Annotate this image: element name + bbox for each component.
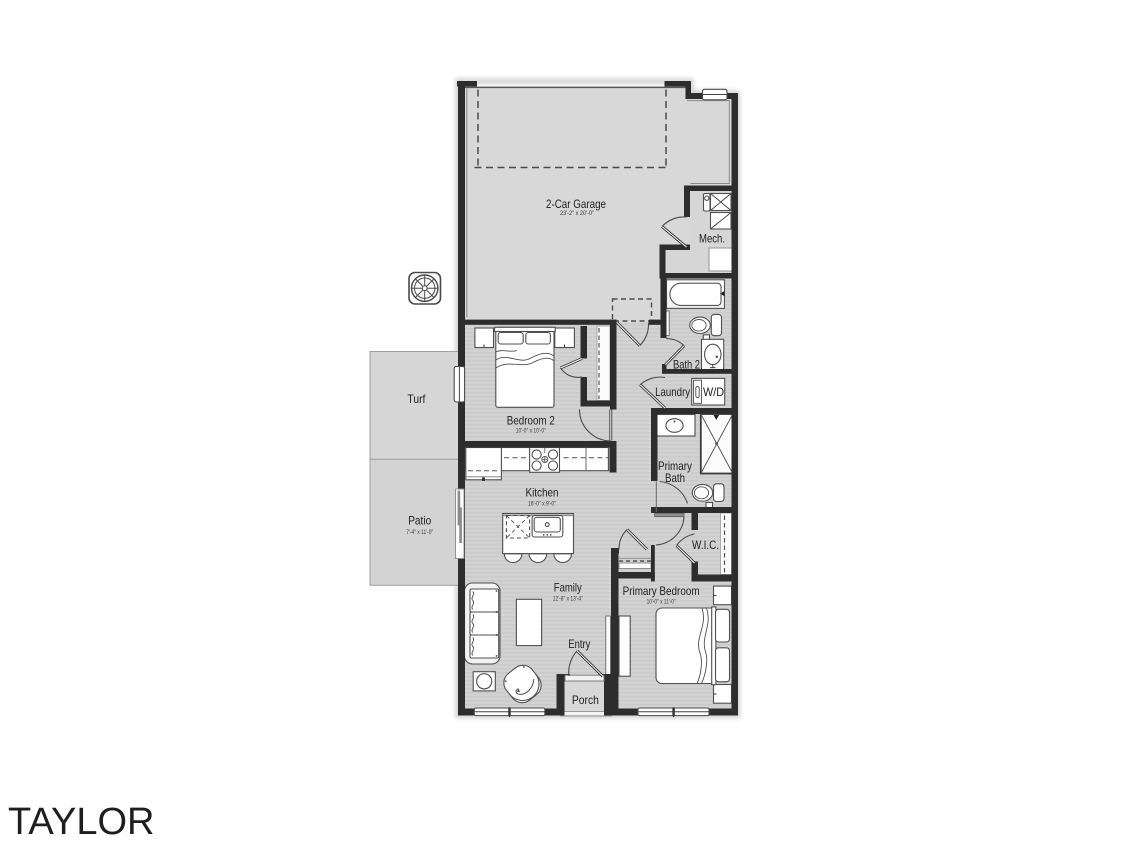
svg-text:Kitchen: Kitchen: [526, 486, 559, 500]
svg-text:23'-2" x 20'-0": 23'-2" x 20'-0": [560, 210, 594, 217]
svg-text:Bath 2: Bath 2: [673, 358, 700, 372]
svg-text:16'-0" x 9'-0": 16'-0" x 9'-0": [528, 501, 556, 508]
svg-text:Bedroom 2: Bedroom 2: [507, 414, 555, 428]
svg-text:Laundry: Laundry: [655, 385, 690, 399]
svg-text:7'-4" x 11'-0": 7'-4" x 11'-0": [406, 529, 433, 536]
svg-text:12'-8" x 13'-4": 12'-8" x 13'-4": [553, 596, 583, 603]
svg-text:W/D: W/D: [703, 385, 724, 399]
svg-text:TAYLOR: TAYLOR: [8, 801, 155, 843]
svg-text:Patio: Patio: [408, 514, 431, 528]
svg-text:Entry: Entry: [568, 637, 590, 651]
svg-text:10'-0" x 11'-0": 10'-0" x 11'-0": [647, 599, 676, 606]
svg-text:Porch: Porch: [572, 693, 599, 707]
svg-text:10'-0" x 10'-0": 10'-0" x 10'-0": [516, 428, 546, 435]
svg-text:Turf: Turf: [407, 392, 426, 406]
svg-text:Family: Family: [554, 581, 582, 595]
svg-text:Bath: Bath: [665, 471, 685, 485]
svg-text:Mech.: Mech.: [699, 232, 725, 246]
svg-text:W.I.C.: W.I.C.: [692, 538, 719, 552]
svg-text:Primary Bedroom: Primary Bedroom: [623, 584, 700, 598]
svg-text:2-Car Garage: 2-Car Garage: [546, 197, 606, 211]
